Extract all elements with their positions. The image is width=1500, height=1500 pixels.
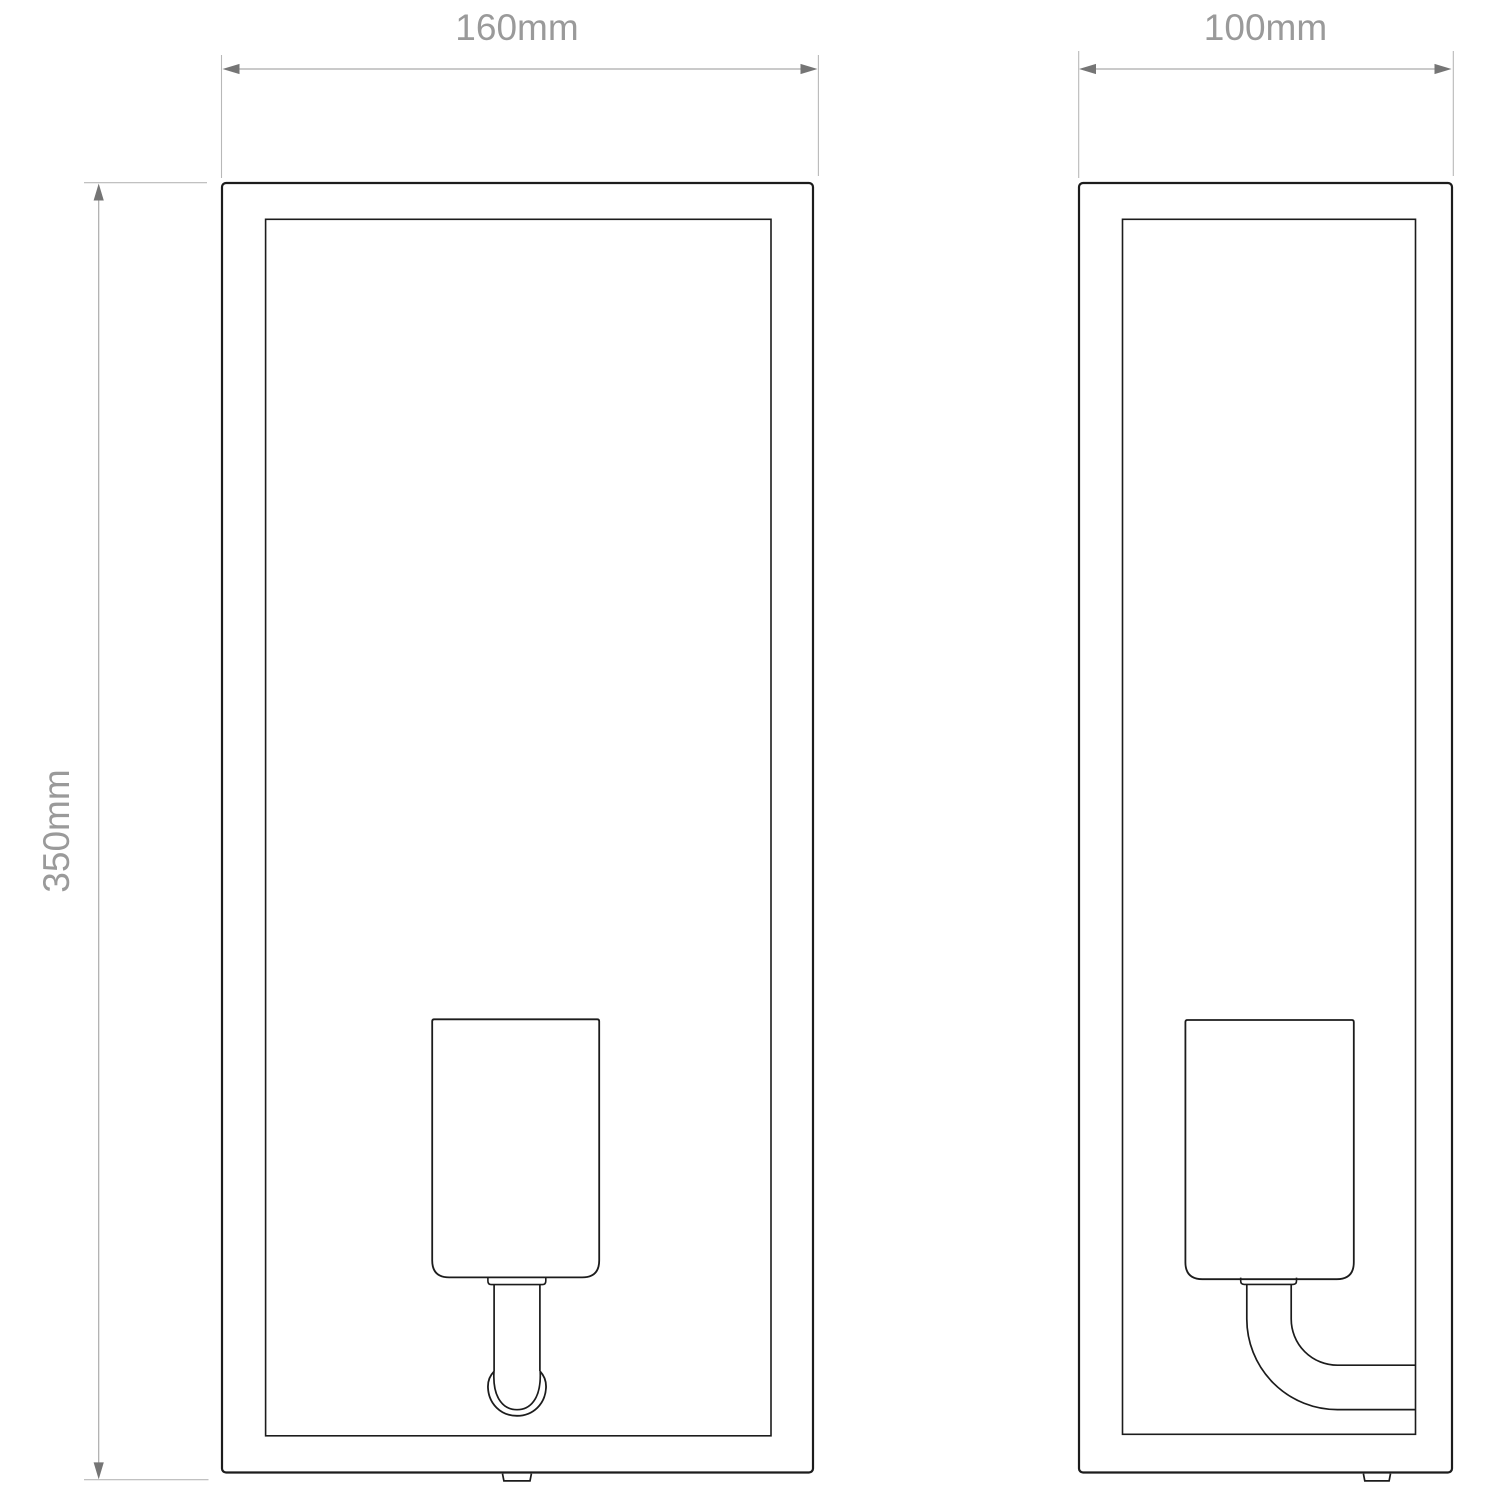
svg-text:350mm: 350mm	[36, 769, 77, 892]
svg-text:100mm: 100mm	[1204, 7, 1327, 48]
svg-text:160mm: 160mm	[455, 7, 578, 48]
